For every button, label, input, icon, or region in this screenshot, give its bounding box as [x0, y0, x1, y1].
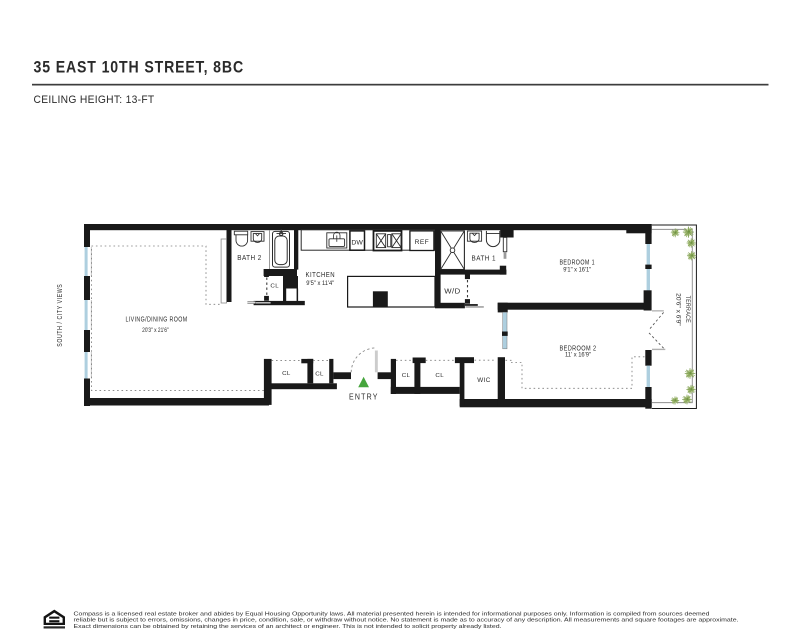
- svg-text:DW: DW: [351, 240, 364, 247]
- svg-text:CL: CL: [402, 373, 411, 379]
- svg-text:W/D: W/D: [444, 289, 461, 296]
- svg-text:BATH 1: BATH 1: [472, 255, 497, 262]
- svg-text:CL: CL: [270, 284, 279, 290]
- svg-text:WIC: WIC: [477, 377, 491, 384]
- svg-text:KITCHEN: KITCHEN: [306, 272, 336, 279]
- svg-text:ENTRY: ENTRY: [349, 392, 379, 402]
- svg-text:9'1" x 16'1": 9'1" x 16'1": [563, 267, 591, 274]
- svg-text:9'5" x 11'4": 9'5" x 11'4": [306, 280, 334, 287]
- svg-text:Exact dimensions can be obtain: Exact dimensions can be obtained by reta…: [74, 624, 503, 630]
- svg-text:REF: REF: [415, 239, 430, 246]
- svg-text:TERRACE: TERRACE: [684, 296, 691, 324]
- svg-text:11' x 16'9": 11' x 16'9": [565, 352, 591, 359]
- svg-text:BATH 2: BATH 2: [237, 255, 262, 262]
- svg-text:35 EAST 10TH STREET, 8BC: 35 EAST 10TH STREET, 8BC: [34, 59, 245, 77]
- svg-text:LIVING/DINING ROOM: LIVING/DINING ROOM: [126, 317, 188, 324]
- svg-text:SOUTH / CITY VIEWS: SOUTH / CITY VIEWS: [57, 284, 64, 347]
- svg-text:20'3" x 21'6": 20'3" x 21'6": [142, 327, 169, 334]
- svg-text:Compass is a licensed real est: Compass is a licensed real estate broker…: [74, 611, 710, 617]
- svg-text:reliable but is subject to err: reliable but is subject to errors, omiss…: [74, 618, 740, 624]
- svg-text:CL: CL: [435, 373, 444, 379]
- svg-text:CL: CL: [315, 371, 324, 377]
- svg-text:CEILING HEIGHT: 13-FT: CEILING HEIGHT: 13-FT: [34, 94, 155, 106]
- svg-text:CL: CL: [282, 371, 291, 377]
- svg-text:20'6" x 6'9": 20'6" x 6'9": [674, 293, 681, 326]
